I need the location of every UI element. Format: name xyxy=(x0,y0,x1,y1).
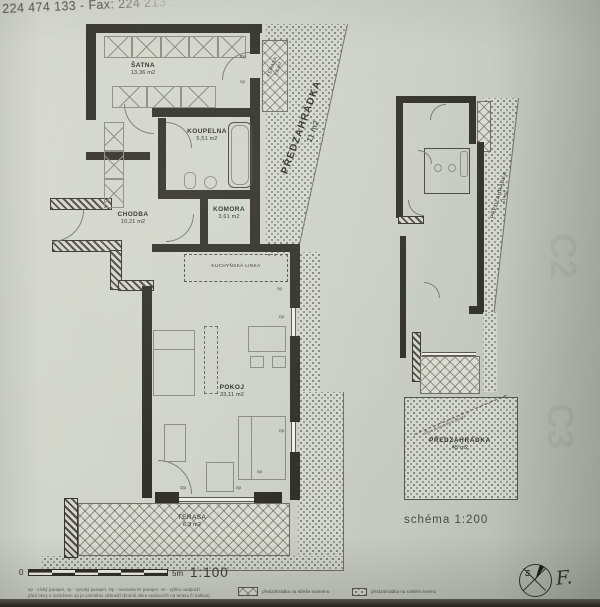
bleedthrough-mark: C3 xyxy=(539,403,581,449)
parapet-mark: Op xyxy=(180,485,186,490)
schema-caption: schéma 1:200 xyxy=(404,514,514,526)
wall-hatched xyxy=(50,198,112,210)
room-label-komora: KOMORA 3,61 m2 xyxy=(203,206,255,221)
window xyxy=(179,497,254,502)
chair xyxy=(272,356,286,368)
schema-wall xyxy=(400,236,406,358)
door-arc xyxy=(166,214,194,242)
parapet-mark: np xyxy=(279,428,284,433)
parapet-mark: np xyxy=(257,469,262,474)
wall xyxy=(290,452,300,500)
schema-wall xyxy=(469,306,484,314)
wardrobe-icon xyxy=(189,36,217,58)
header-phone-fax: 224 474 133 - Fax: 224 213 ... xyxy=(2,0,182,16)
room-name: KOMORA xyxy=(203,206,255,214)
area-name: PŘEDZAHRÁDKA xyxy=(408,437,512,445)
wardrobe-icon xyxy=(104,179,124,208)
note-line-2: před okny s rozměrem np je umístěno zábr… xyxy=(28,593,210,598)
compass-north-letter: S xyxy=(525,569,530,578)
kitchen-label: KUCHYŇSKÁ LINKA xyxy=(186,263,286,269)
schema-wall xyxy=(477,142,484,314)
schema-terasa-area xyxy=(420,356,480,394)
legend-swatch-dots xyxy=(352,588,367,596)
photo-edge xyxy=(0,599,600,607)
room-label-pokoj: POKOJ 33,11 m2 xyxy=(200,384,264,399)
wall xyxy=(152,244,300,252)
parapet-mark: np xyxy=(277,286,282,291)
wall xyxy=(86,24,262,33)
compass-icon: S xyxy=(519,564,552,597)
schema-bathtub xyxy=(460,151,468,177)
area-size: 45 m2 xyxy=(408,445,512,452)
sofa-arm xyxy=(238,416,252,480)
wall xyxy=(86,24,96,120)
room-label-chodba: CHODBA 10,21 m2 xyxy=(100,211,166,226)
bed-pillow xyxy=(153,330,195,350)
schema-wall xyxy=(396,96,476,103)
room-name: CHODBA xyxy=(100,211,166,219)
room-label-satna: ŠATNA 13,36 m2 xyxy=(108,62,178,77)
schema-fixture xyxy=(448,164,456,172)
wall xyxy=(290,252,300,308)
room-area: 6,3 m2 xyxy=(160,522,224,529)
handwritten-signature: F. xyxy=(555,566,573,590)
wall xyxy=(158,190,260,199)
chair xyxy=(250,356,264,368)
scanned-floorplan-page: C2 C3 224 474 133 - Fax: 224 213 ... PŘE… xyxy=(0,0,600,607)
door-arc xyxy=(124,104,154,134)
sink xyxy=(204,176,217,189)
plot-boundary-line xyxy=(343,392,344,571)
room-area: 33,11 m2 xyxy=(200,392,264,399)
room-name: TERASA xyxy=(160,514,224,522)
schema-wall-hatched xyxy=(398,216,424,224)
window xyxy=(291,308,296,336)
scalebar-zero: 0 xyxy=(19,568,23,577)
parapet-mark: np xyxy=(240,79,245,84)
entry-door-arc xyxy=(52,210,84,242)
scale-ratio: 1:100 xyxy=(190,565,229,580)
predzahradka-area xyxy=(298,252,320,394)
wall xyxy=(152,108,256,117)
schema-window xyxy=(422,352,476,356)
wardrobe-icon xyxy=(132,36,160,58)
parapet-mark: Op xyxy=(240,54,246,59)
wardrobe-row xyxy=(104,36,246,58)
room-name: POKOJ xyxy=(200,384,264,392)
legend-swatch-crosshatch xyxy=(238,587,258,596)
wall xyxy=(290,336,300,422)
parapet-mark: np xyxy=(279,314,284,319)
coffee-table xyxy=(206,462,234,492)
door-arc xyxy=(158,460,192,494)
wardrobe-icon xyxy=(161,36,189,58)
wall-hatched xyxy=(64,498,78,558)
wardrobe-icon xyxy=(104,151,124,180)
wardrobe-icon xyxy=(104,36,132,58)
scalebar-5m: 5m xyxy=(172,569,183,578)
armchair xyxy=(164,424,186,462)
room-area: 3,61 m2 xyxy=(203,214,255,221)
schema-predzahradka-area xyxy=(483,312,497,392)
wardrobe-icon xyxy=(181,86,216,108)
dining-table xyxy=(248,326,286,352)
schema-door-arc xyxy=(430,104,446,120)
toilet xyxy=(184,172,196,189)
schema-door-arc xyxy=(408,200,424,216)
legend-label: předzahrádka na rostlém terénu xyxy=(371,589,436,594)
room-name: KOUPELNA xyxy=(170,128,244,136)
scalebar xyxy=(28,569,168,576)
schema-predzahradka-bottom-label: PŘEDZAHRÁDKA 45 m2 xyxy=(408,437,512,452)
schema-door-arc xyxy=(424,282,440,298)
wall xyxy=(142,286,152,498)
legend-label: předzahrádka na střeše suterénu xyxy=(262,589,329,594)
predzahradka-area xyxy=(298,392,344,558)
wardrobe-icon xyxy=(104,122,124,151)
window xyxy=(291,422,296,452)
room-name: ŠATNA xyxy=(108,62,178,70)
wall xyxy=(158,118,166,196)
room-area: 10,21 m2 xyxy=(100,219,166,226)
note-line-1: np - nízký parapet, vp - vysoký parapet,… xyxy=(28,587,200,592)
room-area: 5,51 m2 xyxy=(170,136,244,143)
schema-fixture xyxy=(434,164,442,172)
schema-wall xyxy=(469,96,476,144)
room-area: 13,36 m2 xyxy=(108,70,178,77)
terasa-area xyxy=(78,503,290,556)
room-label-koupelna: KOUPELNA 5,51 m2 xyxy=(170,128,244,143)
bleedthrough-mark: C2 xyxy=(542,233,584,279)
parapet-mark: np xyxy=(236,485,241,490)
wall xyxy=(250,24,260,54)
schema-wall xyxy=(396,96,403,218)
room-label-terasa: TERASA 6,3 m2 xyxy=(160,514,224,529)
wardrobe-column xyxy=(104,122,124,208)
